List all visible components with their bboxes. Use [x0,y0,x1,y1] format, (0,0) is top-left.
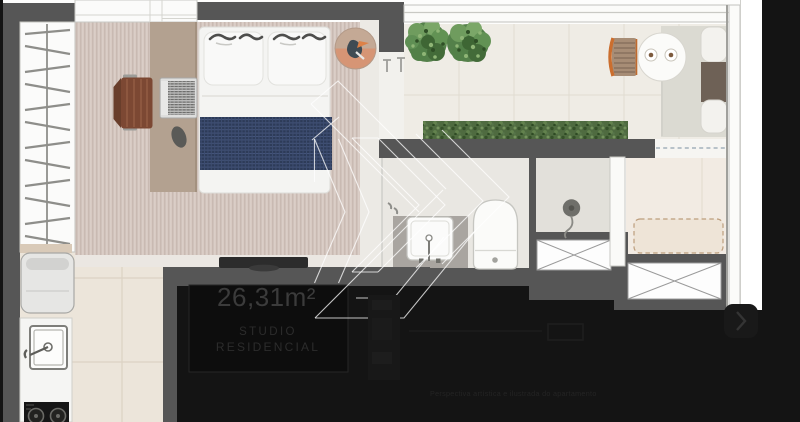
svg-text:Perspectiva artística e ilustr: Perspectiva artística e ilustrada do apa… [430,389,597,398]
svg-text:RESIDENCIAL: RESIDENCIAL [216,340,320,354]
svg-text:26,31m²: 26,31m² [217,282,316,312]
svg-text:STUDIO: STUDIO [239,326,297,338]
